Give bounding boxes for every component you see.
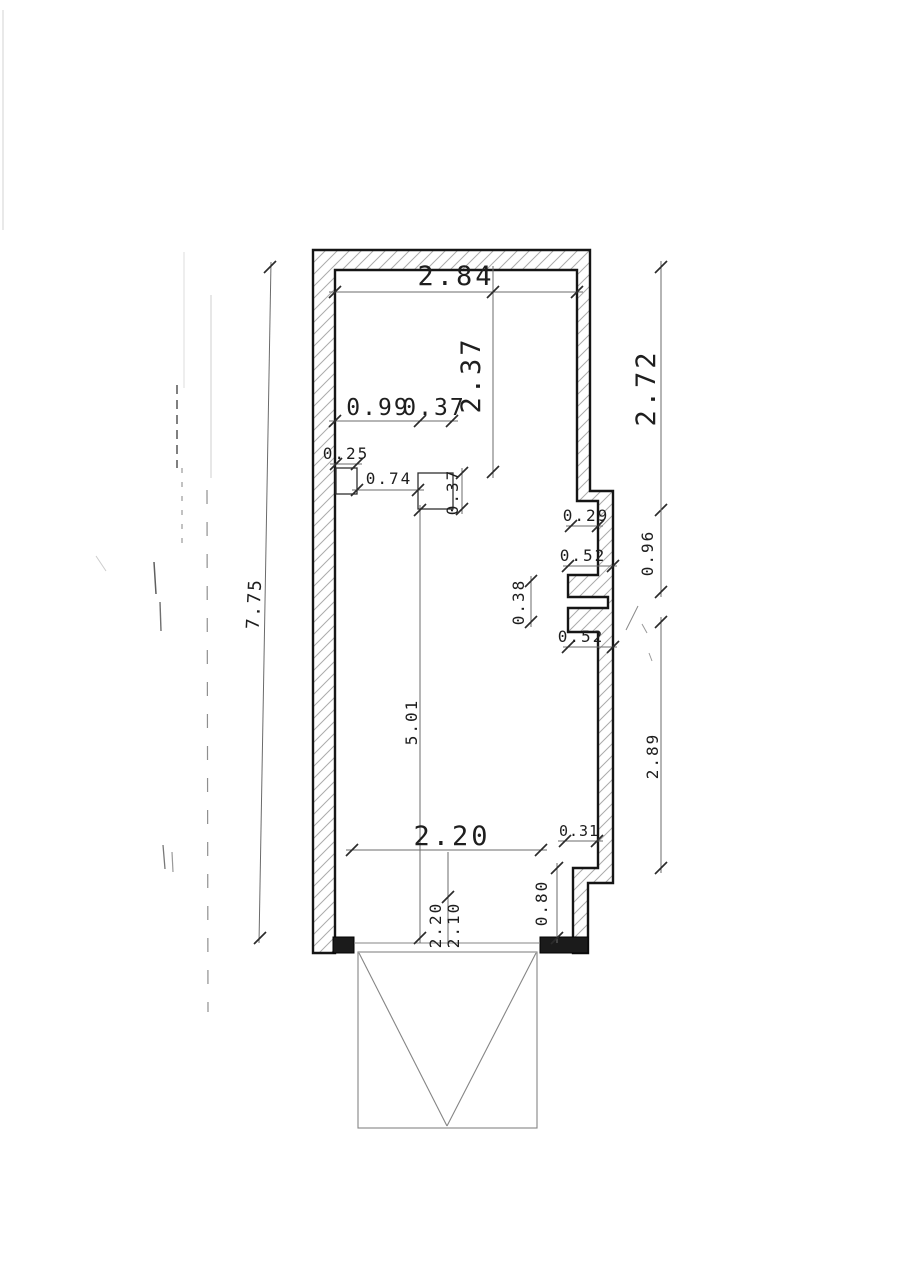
- dim-label-jamb-depth: 0.80: [532, 880, 551, 927]
- dim-opening-width: 2.20: [346, 821, 547, 856]
- scanned-page: 2.84 2.37 0.99 0.37 0.25 0.74: [0, 0, 904, 1280]
- dim-label-wall-step-right: 0.29: [563, 506, 610, 525]
- dim-label-right-joint: 0.96: [638, 530, 657, 577]
- dim-right-upper: 2.72: [631, 261, 667, 516]
- dim-offsets-left: 0.99 0.37: [329, 395, 466, 427]
- door-diagonal-right: [447, 953, 536, 1126]
- dim-tick: [264, 261, 276, 273]
- door-jamb-right: [540, 937, 588, 953]
- dim-right-lower: 2.89: [643, 616, 667, 874]
- dim-height-to-pillar: 2.37: [456, 266, 499, 478]
- dim-jamb-depth: 0.80: [532, 862, 563, 944]
- dim-length-inner: 5.01: [402, 504, 426, 944]
- dim-label-length-inner: 5.01: [402, 699, 421, 746]
- floor-plan-drawing: 2.84 2.37 0.99 0.37 0.25 0.74: [0, 0, 904, 1280]
- dim-door-size: 2.20 2.10: [426, 852, 463, 948]
- dim-tick: [254, 932, 266, 944]
- dim-label-right-upper: 2.72: [631, 349, 662, 426]
- dim-label-height-total: 7.75: [243, 578, 267, 630]
- dim-label-niche-width: 0.25: [323, 444, 370, 463]
- dim-label-niche-to-pillar: 0.74: [366, 469, 413, 488]
- dim-label-opening-width: 2.20: [413, 821, 490, 852]
- dim-label-right-lower: 2.89: [643, 733, 662, 780]
- dim-label-door-width: 2.20: [426, 902, 445, 949]
- dim-label-jamb-step: 0.31: [559, 822, 599, 840]
- door-diagonal-left: [359, 953, 447, 1126]
- dim-label-pillar-width-top: 0.37: [402, 395, 465, 421]
- dim-niche-to-pillar: 0.74: [351, 469, 424, 496]
- dim-label-width-top: 2.84: [417, 261, 494, 292]
- door-jamb-left: [333, 937, 354, 953]
- dim-pillar-depth: 0.37: [443, 467, 468, 515]
- dim-height-total: 7.75: [243, 261, 276, 944]
- dim-label-joint-lower: 0.52: [558, 627, 605, 646]
- garage-door-panel: [358, 952, 537, 1128]
- dim-label-joint-height: 0.38: [509, 579, 528, 626]
- dim-label-offset-left: 0.99: [346, 395, 409, 421]
- dim-right-joint: 0.96: [638, 505, 667, 598]
- dim-label-pillar-depth: 0.37: [443, 469, 462, 516]
- garage-door: [354, 943, 540, 1128]
- dim-label-door-height: 2.10: [444, 902, 463, 949]
- dim-label-joint-upper: 0.52: [560, 546, 607, 565]
- dim-joint-height: 0.38: [509, 575, 537, 628]
- dim-jamb-step: 0.31: [558, 822, 603, 847]
